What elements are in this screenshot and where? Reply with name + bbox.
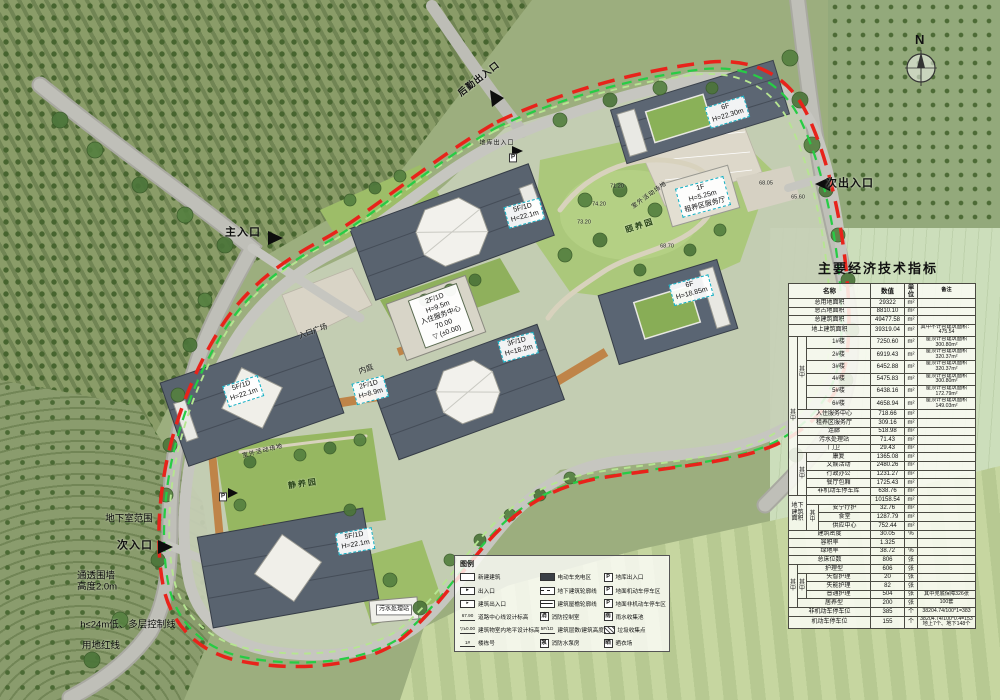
table-cell: 7250.60	[871, 337, 905, 349]
table-cell: 200	[871, 599, 905, 608]
tree-icon	[653, 81, 667, 95]
table-cell	[918, 573, 976, 582]
bldg-entrance-icon: ▸	[460, 600, 475, 608]
table-row: 普通护理504张其中兜底保障326张	[789, 590, 976, 599]
legend-item-new-bldg: 新建建筑	[460, 572, 540, 583]
table-cell: 康复	[807, 453, 871, 462]
table-cell: 4#楼	[807, 373, 871, 385]
table-cell: 30.05	[871, 530, 905, 539]
table-cell	[918, 556, 976, 565]
table-cell: 518.98	[871, 427, 905, 436]
tree-icon	[469, 274, 481, 286]
table-cell: 污水处理站	[798, 436, 871, 445]
table-cell: m²	[905, 453, 918, 462]
table-cell	[918, 547, 976, 556]
table-cell: %	[905, 547, 918, 556]
table-row: 地下建筑面积10158.54m²	[789, 496, 976, 505]
table-cell: 名称	[789, 284, 871, 299]
table-cell: m²	[905, 410, 918, 419]
legend-item-floors-height: 5F/1D建筑层数/建筑高度	[540, 625, 604, 636]
tree-icon	[369, 182, 381, 194]
table-cell: 其中	[789, 337, 798, 496]
table-cell: m²	[905, 324, 918, 336]
table-row: 入住服务中心718.66m²	[789, 410, 976, 419]
table-cell: 606	[871, 565, 905, 574]
table-cell	[918, 496, 976, 505]
tree-icon	[634, 264, 646, 276]
table-cell	[918, 479, 976, 488]
table-row: 行政办公1231.27m²	[789, 470, 976, 479]
table-cell: 文娱活动	[807, 461, 871, 470]
table-row: 绿地率38.72%	[789, 547, 976, 556]
table-cell	[918, 299, 976, 308]
legend-item-trash: 垃圾收集点	[604, 625, 666, 636]
trash-icon	[604, 626, 615, 634]
legend-item-fire-pump: 泵消防水泵房	[540, 638, 604, 649]
tree-icon	[383, 573, 397, 587]
floors-height-icon: 5F/1D	[540, 626, 555, 634]
legend-item-label: 建筑层数/建筑高度	[558, 626, 604, 634]
table-cell: 6438.16	[871, 385, 905, 397]
table-cell	[918, 453, 976, 462]
tree-icon	[444, 284, 456, 296]
table-cell: 39319.04	[871, 324, 905, 336]
table-row: 名称数值单位备注	[789, 284, 976, 299]
table-row: 机动车停车位155个38204.74/100*0.4=153 地上7个、地下14…	[789, 616, 976, 628]
floor-elev-icon: ▽±0.00	[460, 626, 475, 634]
table-cell: m²	[905, 337, 918, 349]
table-cell: 49477.58	[871, 316, 905, 325]
table-cell: 100套	[918, 599, 976, 608]
legend-item-floor-elev: ▽±0.00建筑物室内地平设计标高	[460, 625, 540, 636]
table-row: 总占地面积8810.10m²	[789, 307, 976, 316]
legend-item-label: 地下建筑轮廓线	[558, 587, 597, 595]
legend-item-entrance-arrow: ►出入口	[460, 585, 540, 596]
tree-icon	[132, 177, 148, 193]
table-row: 其中安宁疗护32.76m²	[789, 504, 976, 513]
table-cell: 容积率	[789, 539, 871, 548]
rain-icon: 雨	[604, 612, 613, 621]
legend-item-rain: 雨雨水收集池	[604, 612, 666, 623]
table-cell: 638.76	[871, 487, 905, 496]
table-cell: 1725.43	[871, 479, 905, 488]
table-cell	[918, 436, 976, 445]
table-cell: 20	[871, 573, 905, 582]
table-cell: 1#楼	[807, 337, 871, 349]
tree-icon	[714, 224, 726, 236]
legend-item-label: 建筑物室内地平设计标高	[478, 626, 540, 634]
table-cell	[918, 513, 976, 522]
table-cell: 71.43	[871, 436, 905, 445]
tree-icon	[706, 82, 718, 94]
table-cell: m²	[905, 418, 918, 427]
legend-item-label: 新建建筑	[478, 573, 500, 581]
legend-item-p-bike: P地面非机动车停车区	[604, 598, 666, 609]
north-label: N	[915, 32, 924, 47]
table-cell: 总建筑面积	[789, 316, 871, 325]
table-cell	[918, 418, 976, 427]
table-row: 其中护理型606张	[789, 565, 976, 574]
legend-item-label: 地面机动车停车区	[616, 587, 661, 595]
table-row: 非机动车停车位385个38204.74/100*1=383	[789, 608, 976, 617]
new-bldg-icon	[460, 573, 475, 581]
table-cell: 4658.94	[871, 398, 905, 410]
tree-icon	[177, 207, 193, 223]
table-cell: m²	[905, 470, 918, 479]
table-cell: 1.325	[871, 539, 905, 548]
p-car-icon: P	[604, 586, 613, 595]
table-cell: 其中	[798, 573, 807, 599]
table-cell	[918, 316, 976, 325]
table-cell: 38204.74/100*1=383	[918, 608, 976, 617]
table-cell: m²	[905, 299, 918, 308]
legend-item-p-car: P地面机动车停车区	[604, 585, 666, 596]
table-cell: 806	[871, 556, 905, 565]
ev-charge-icon	[540, 573, 555, 581]
legend-column: 新建建筑►出入口▸建筑出入口67.90道路中心线设计标高▽±0.00建筑物室内地…	[460, 572, 540, 649]
table-cell: 29322	[871, 299, 905, 308]
fire-ctrl-icon: 消	[540, 612, 549, 621]
table-row: 其中康复1365.08m²	[789, 453, 976, 462]
table-cell: m²	[905, 373, 918, 385]
table-cell	[918, 530, 976, 539]
table-cell: 总占地面积	[789, 307, 871, 316]
legend-column: P地库出入口P地面机动车停车区P地面非机动车停车区雨雨水收集池垃圾收集点晒晒衣场	[604, 572, 666, 649]
table-cell	[918, 444, 976, 453]
table-cell: 租养区服务厅	[798, 418, 871, 427]
table-cell: m²	[905, 504, 918, 513]
table-cell	[905, 539, 918, 548]
table-cell: 155	[871, 616, 905, 628]
indicators-table: 名称数值单位备注总用地面积29322m²总占地面积8810.10m²总建筑面积4…	[788, 283, 976, 629]
legend-item-road-elev: 67.90道路中心线设计标高	[460, 612, 540, 623]
table-row: 非机动车停车库638.76m²	[789, 487, 976, 496]
table-cell: 752.44	[871, 522, 905, 531]
legend-column: 电动车充电区地下建筑轮廓线建筑屋檐轮廓线消消防控制室5F/1D建筑层数/建筑高度…	[540, 572, 604, 649]
road-elev-icon: 67.90	[460, 613, 475, 621]
table-cell: 安宁疗护	[819, 504, 871, 513]
tree-icon	[553, 113, 567, 127]
north-compass	[905, 50, 937, 86]
tree-icon	[198, 293, 212, 307]
tree-icon	[324, 442, 336, 454]
tree-icon	[234, 499, 246, 511]
table-cell: 普通护理	[807, 590, 871, 599]
table-cell: m²	[905, 496, 918, 505]
site-plan-canvas: 后勤出入口地库出入口次出入口主入口入口广场内庭室外活动场地室外活动场地颐养园静养…	[0, 0, 1000, 700]
table-cell: 其中	[789, 565, 798, 608]
table-cell: 385	[871, 608, 905, 617]
table-cell: 屋顶计容建筑面积300.80m²	[918, 373, 976, 385]
legend-item-label: 垃圾收集点	[618, 626, 646, 634]
indicators-title: 主要经济技术指标	[818, 258, 992, 277]
tree-icon	[52, 112, 68, 128]
table-row: 4#楼5475.83m²屋顶计容建筑面积300.80m²	[789, 373, 976, 385]
legend-item-label: 建筑屋檐轮廓线	[558, 600, 597, 608]
table-row: 总用地面积29322m²	[789, 299, 976, 308]
table-cell: 餐厅包厢	[807, 479, 871, 488]
legend-item-eave-line: 建筑屋檐轮廓线	[540, 598, 604, 609]
legend-item-label: 电动车充电区	[558, 573, 592, 581]
table-cell	[918, 565, 976, 574]
table-cell: 张	[905, 556, 918, 565]
table-cell	[918, 539, 976, 548]
table-cell: 2#楼	[807, 349, 871, 361]
table-cell	[807, 496, 871, 505]
table-cell: 数值	[871, 284, 905, 299]
table-cell: 非机动车停车库	[807, 487, 871, 496]
legend-item-label: 地面非机动车停车区	[616, 600, 666, 608]
tree-icon	[87, 142, 103, 158]
legend-item-bldg-no: 1#楼栋号	[460, 638, 540, 649]
table-cell: 居养型	[798, 599, 871, 608]
table-cell	[918, 504, 976, 513]
table-cell: m²	[905, 436, 918, 445]
tree-icon	[244, 456, 256, 468]
table-cell: 其中不计容建筑面积：475.54	[918, 324, 976, 336]
table-cell: m²	[905, 307, 918, 316]
tree-icon	[684, 244, 696, 256]
table-cell: 其中	[798, 453, 807, 496]
p-bike-icon: P	[604, 599, 613, 608]
table-cell: 309.16	[871, 418, 905, 427]
table-cell: m²	[905, 427, 918, 436]
tree-icon	[394, 170, 406, 182]
table-cell: 其中	[798, 337, 807, 410]
table-cell: 屋顶计容建筑面积172.79m²	[918, 385, 976, 397]
table-cell: 82	[871, 582, 905, 591]
table-cell: 护理型	[798, 565, 871, 574]
table-cell: m²	[905, 316, 918, 325]
table-row: 门卫29.43m²	[789, 444, 976, 453]
table-row: 建筑密度30.05%	[789, 530, 976, 539]
table-cell: 个	[905, 608, 918, 617]
legend-columns: 新建建筑►出入口▸建筑出入口67.90道路中心线设计标高▽±0.00建筑物室内地…	[460, 572, 664, 649]
table-cell: 8810.10	[871, 307, 905, 316]
legend-item-label: 建筑出入口	[478, 600, 506, 608]
legend-item-label: 道路中心线设计标高	[478, 613, 528, 621]
tree-icon	[84, 652, 100, 668]
tree-icon	[578, 193, 592, 207]
dry-icon: 晒	[604, 639, 613, 648]
table-row: 5#楼6438.16m²屋顶计容建筑面积172.79m²	[789, 385, 976, 397]
table-cell: 6919.43	[871, 349, 905, 361]
legend-item-bldg-entrance: ▸建筑出入口	[460, 598, 540, 609]
table-cell: 地下建筑面积	[789, 496, 807, 530]
table-cell: 个	[905, 616, 918, 628]
table-cell: 32.76	[871, 504, 905, 513]
tree-icon	[593, 233, 607, 247]
table-cell: 3#楼	[807, 361, 871, 373]
legend-item-dry: 晒晒衣场	[604, 638, 666, 649]
table-cell: m²	[905, 444, 918, 453]
table-cell: 张	[905, 590, 918, 599]
tree-icon	[419, 294, 431, 306]
tree-icon	[217, 237, 233, 253]
table-cell: m²	[905, 385, 918, 397]
table-row: 6#楼4658.94m²屋顶计容建筑面积149.03m²	[789, 398, 976, 410]
legend-item-p-garage: P地库出入口	[604, 572, 666, 583]
table-cell: 38204.74/100*0.4=153 地上7个、地下148个	[918, 616, 976, 628]
legend-item-label: 楼栋号	[478, 639, 495, 647]
table-cell: 2480.26	[871, 461, 905, 470]
table-cell: m²	[905, 513, 918, 522]
table-row: 失能护理82张	[789, 582, 976, 591]
legend-panel: 图例 新建建筑►出入口▸建筑出入口67.90道路中心线设计标高▽±0.00建筑物…	[454, 555, 670, 652]
table-cell: m²	[905, 461, 918, 470]
table-cell: 张	[905, 565, 918, 574]
table-cell: 屋顶计容建筑面积149.03m²	[918, 398, 976, 410]
table-cell: 6#楼	[807, 398, 871, 410]
table-row: 地上建筑面积39319.04m²其中不计容建筑面积：475.54	[789, 324, 976, 336]
table-row: 文娱活动2480.26m²	[789, 461, 976, 470]
legend-item-ev-charge: 电动车充电区	[540, 572, 604, 583]
indicators-panel: 主要经济技术指标 名称数值单位备注总用地面积29322m²总占地面积8810.1…	[788, 258, 992, 629]
bldg-no-icon: 1#	[460, 639, 475, 647]
table-cell: 食堂	[819, 513, 871, 522]
table-cell: 其中兜底保障326张	[918, 590, 976, 599]
table-row: 其中失智护理20张	[789, 573, 976, 582]
dash-outline-icon	[540, 587, 555, 595]
table-cell	[918, 427, 976, 436]
table-row: 总建筑面积49477.58m²	[789, 316, 976, 325]
table-cell	[918, 522, 976, 531]
table-cell	[918, 487, 976, 496]
table-cell: 机动车停车位	[789, 616, 871, 628]
table-row: 其中其中1#楼7250.60m²屋顶计容建筑面积300.80m²	[789, 337, 976, 349]
table-cell: 绿地率	[789, 547, 871, 556]
table-cell: m²	[905, 487, 918, 496]
tree-icon	[613, 183, 627, 197]
table-cell: 718.66	[871, 410, 905, 419]
entrance-arrow-icon: ►	[460, 587, 475, 595]
legend-item-label: 消防水泵房	[552, 639, 580, 647]
p-garage-icon: P	[604, 573, 613, 582]
table-cell: 失智护理	[807, 573, 871, 582]
table-cell	[918, 410, 976, 419]
table-row: 容积率1.325	[789, 539, 976, 548]
table-row: 2#楼6919.43m²屋顶计容建筑面积320.37m²	[789, 349, 976, 361]
legend-item-dash-outline: 地下建筑轮廓线	[540, 585, 604, 596]
table-row: 总床位数806张	[789, 556, 976, 565]
table-cell: 1231.27	[871, 470, 905, 479]
table-cell: 29.43	[871, 444, 905, 453]
table-cell: 失能护理	[807, 582, 871, 591]
table-cell: %	[905, 530, 918, 539]
table-cell: 504	[871, 590, 905, 599]
legend-title: 图例	[460, 559, 664, 569]
table-cell: 总用地面积	[789, 299, 871, 308]
table-row: 连廊518.98m²	[789, 427, 976, 436]
table-cell: 建筑密度	[789, 530, 871, 539]
table-row: 污水处理站71.43m²	[789, 436, 976, 445]
table-cell: 6452.88	[871, 361, 905, 373]
tree-icon	[344, 194, 356, 206]
table-cell: 入住服务中心	[798, 410, 871, 419]
legend-item-label: 地库出入口	[616, 573, 644, 581]
table-cell: 38.72	[871, 547, 905, 556]
table-cell: m²	[905, 361, 918, 373]
table-cell: 张	[905, 573, 918, 582]
table-cell: 1287.79	[871, 513, 905, 522]
table-cell	[918, 307, 976, 316]
table-row: 居养型200张100套	[789, 599, 976, 608]
tree-icon	[112, 612, 128, 628]
legend-item-label: 晒衣场	[616, 639, 633, 647]
table-cell: 地上建筑面积	[789, 324, 871, 336]
tree-icon	[171, 388, 185, 402]
fire-pump-icon: 泵	[540, 639, 549, 648]
table-cell: 供应中心	[819, 522, 871, 531]
table-cell: 行政办公	[807, 470, 871, 479]
table-cell	[918, 461, 976, 470]
table-cell: 门卫	[798, 444, 871, 453]
table-cell: 5#楼	[807, 385, 871, 397]
eave-line-icon	[540, 600, 555, 608]
table-cell: 张	[905, 599, 918, 608]
legend-item-label: 出入口	[478, 587, 495, 595]
legend-item-fire-ctrl: 消消防控制室	[540, 612, 604, 623]
table-cell: 连廊	[798, 427, 871, 436]
tree-icon	[344, 504, 356, 516]
table-cell: 备注	[918, 284, 976, 299]
tree-icon	[648, 203, 662, 217]
table-cell: 屋顶计容建筑面积320.37m²	[918, 361, 976, 373]
table-cell	[918, 470, 976, 479]
table-cell: 非机动车停车位	[789, 608, 871, 617]
table-cell	[918, 582, 976, 591]
table-cell: 5475.83	[871, 373, 905, 385]
table-cell: m²	[905, 522, 918, 531]
table-cell: 10158.54	[871, 496, 905, 505]
table-cell: m²	[905, 398, 918, 410]
table-cell: 单位	[905, 284, 918, 299]
table-cell: 屋顶计容建筑面积320.37m²	[918, 349, 976, 361]
tree-icon	[782, 50, 798, 66]
tree-icon	[603, 93, 617, 107]
table-cell: 张	[905, 582, 918, 591]
tree-icon	[294, 449, 306, 461]
tree-icon	[354, 434, 366, 446]
table-cell: 屋顶计容建筑面积300.80m²	[918, 337, 976, 349]
table-cell: 1365.08	[871, 453, 905, 462]
tree-icon	[183, 338, 197, 352]
table-cell: m²	[905, 479, 918, 488]
table-row: 餐厅包厢1725.43m²	[789, 479, 976, 488]
table-cell: m²	[905, 349, 918, 361]
tree-icon	[558, 248, 572, 262]
table-cell: 其中	[807, 504, 819, 530]
legend-item-label: 消防控制室	[552, 613, 580, 621]
table-row: 3#楼6452.88m²屋顶计容建筑面积320.37m²	[789, 361, 976, 373]
legend-item-label: 雨水收集池	[616, 613, 644, 621]
table-row: 租养区服务厅309.16m²	[789, 418, 976, 427]
table-cell: 总床位数	[789, 556, 871, 565]
